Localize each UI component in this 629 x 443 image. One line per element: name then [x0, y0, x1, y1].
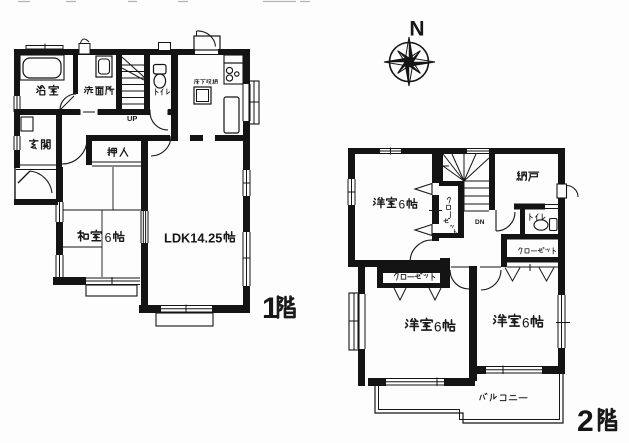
svg-text:UP: UP: [127, 114, 137, 123]
svg-text:6: 6: [434, 320, 442, 335]
svg-text:LDK14.25: LDK14.25: [164, 231, 222, 246]
svg-text:1: 1: [262, 292, 279, 325]
svg-text:6: 6: [522, 316, 530, 331]
svg-text:DN: DN: [475, 219, 485, 226]
svg-text:6: 6: [399, 198, 406, 212]
svg-text:N: N: [409, 18, 424, 41]
svg-text:6: 6: [105, 231, 112, 245]
svg-text:2: 2: [577, 405, 594, 438]
